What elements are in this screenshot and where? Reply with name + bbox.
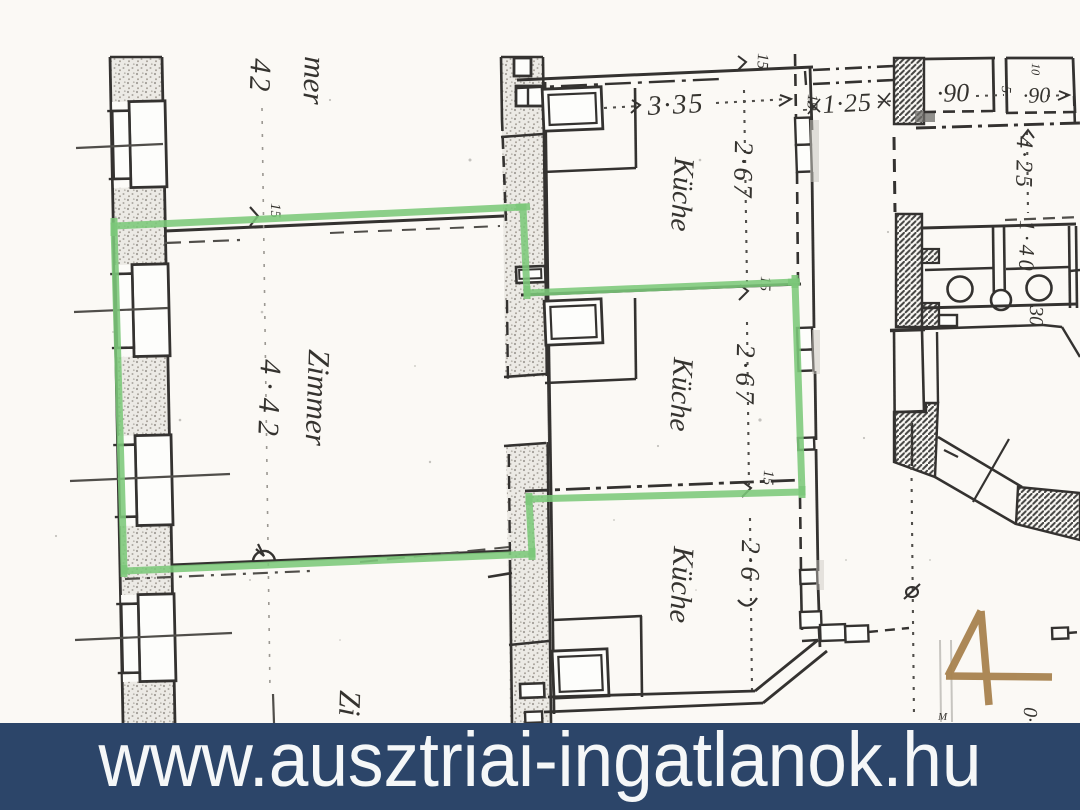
svg-text:Küche: Küche — [663, 356, 699, 433]
svg-text:·90: ·90 — [1022, 82, 1050, 108]
svg-text:2·6: 2·6 — [735, 540, 766, 583]
svg-text:10: 10 — [1029, 63, 1043, 75]
svg-text:Küche: Küche — [663, 545, 700, 624]
svg-text:42: 42 — [243, 58, 277, 95]
svg-text:30: 30 — [1025, 305, 1047, 326]
svg-text:www.ausztriai-ingatlanok.hu: www.ausztriai-ingatlanok.hu — [98, 717, 982, 803]
svg-text:·90: ·90 — [936, 78, 969, 108]
svg-text:1·40: 1·40 — [1014, 220, 1040, 275]
svg-text:1·25: 1·25 — [822, 87, 873, 119]
svg-text:Küche: Küche — [664, 156, 700, 233]
svg-text:Zi: Zi — [332, 690, 368, 717]
svg-text:5: 5 — [998, 86, 1013, 94]
svg-text:mer: mer — [296, 56, 333, 106]
svg-text:2·67: 2·67 — [730, 344, 761, 408]
svg-text:15: 15 — [753, 53, 771, 70]
svg-text:Zimmer: Zimmer — [299, 349, 337, 448]
svg-text:2·67: 2·67 — [728, 141, 759, 201]
svg-text:3·35: 3·35 — [646, 88, 706, 122]
svg-text:4·42: 4·42 — [251, 359, 287, 445]
svg-text:15: 15 — [759, 470, 776, 486]
svg-text:4·25: 4·25 — [1010, 136, 1037, 190]
